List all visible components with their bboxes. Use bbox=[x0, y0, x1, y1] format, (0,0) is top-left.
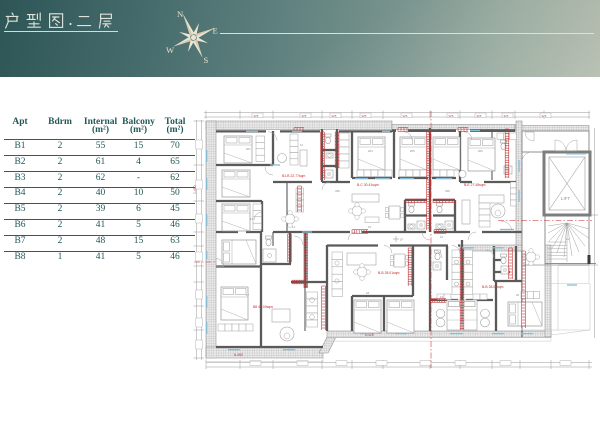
svg-text:1-450: 1-450 bbox=[193, 185, 197, 194]
svg-text:325: 325 bbox=[253, 114, 258, 118]
svg-text:B-C 30.41sqm: B-C 30.41sqm bbox=[357, 183, 379, 187]
svg-text:348: 348 bbox=[445, 189, 450, 193]
svg-text:13: 13 bbox=[250, 217, 254, 221]
svg-text:12: 12 bbox=[300, 143, 304, 147]
svg-text:21: 21 bbox=[566, 237, 570, 241]
svg-text:1F: 1F bbox=[400, 238, 404, 242]
svg-text:325: 325 bbox=[448, 114, 453, 118]
svg-text:19: 19 bbox=[440, 295, 444, 299]
svg-text:B1-B 22.77sqm: B1-B 22.77sqm bbox=[282, 174, 306, 178]
svg-text:20: 20 bbox=[516, 293, 520, 297]
svg-text:6-450: 6-450 bbox=[234, 353, 243, 357]
svg-text:B-E 27.48sqm: B-E 27.48sqm bbox=[464, 183, 486, 187]
svg-text:325: 325 bbox=[503, 114, 508, 118]
svg-text:205: 205 bbox=[410, 149, 415, 153]
svg-text:325: 325 bbox=[331, 114, 336, 118]
svg-text:15: 15 bbox=[368, 225, 372, 229]
svg-text:325: 325 bbox=[402, 114, 407, 118]
svg-text:348: 348 bbox=[335, 189, 340, 193]
svg-text:17: 17 bbox=[246, 293, 250, 297]
svg-text:LIFT: LIFT bbox=[561, 196, 570, 201]
svg-text:E: E bbox=[213, 26, 218, 36]
svg-text:204: 204 bbox=[368, 149, 373, 153]
svg-text:B-B 28.01sqm: B-B 28.01sqm bbox=[482, 285, 504, 289]
svg-text:325: 325 bbox=[541, 114, 546, 118]
svg-text:325: 325 bbox=[476, 114, 481, 118]
svg-text:206: 206 bbox=[478, 149, 483, 153]
svg-text:16: 16 bbox=[440, 235, 444, 239]
svg-text:18: 18 bbox=[366, 291, 370, 295]
svg-text:B-B 28.01sqm: B-B 28.01sqm bbox=[378, 271, 400, 275]
svg-text:B8 41.00sqm: B8 41.00sqm bbox=[253, 305, 273, 309]
svg-text:325: 325 bbox=[361, 114, 366, 118]
svg-text:325: 325 bbox=[301, 114, 306, 118]
svg-text:14: 14 bbox=[292, 225, 296, 229]
svg-text:201: 201 bbox=[246, 147, 251, 151]
